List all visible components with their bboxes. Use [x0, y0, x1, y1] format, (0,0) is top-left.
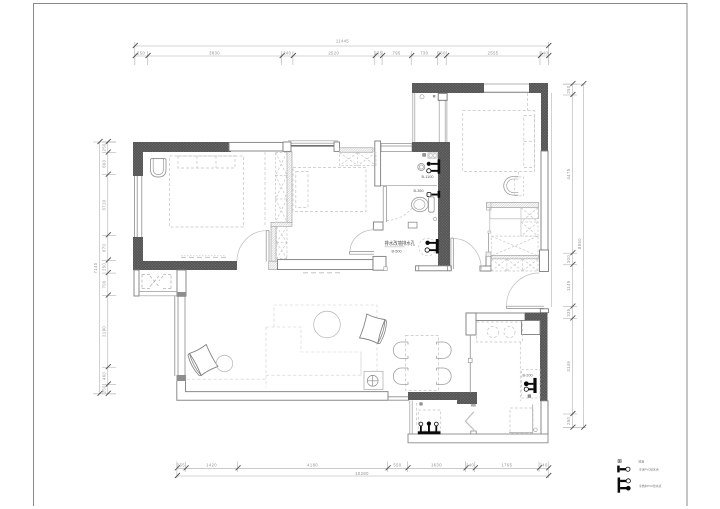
- svg-text:3710: 3710: [102, 199, 107, 210]
- svg-text:1145: 1145: [566, 280, 571, 291]
- svg-text:255: 255: [177, 463, 185, 468]
- svg-text:250: 250: [102, 385, 107, 393]
- svg-text:250: 250: [102, 143, 107, 151]
- svg-text:240: 240: [466, 463, 474, 468]
- svg-text:335: 335: [566, 308, 571, 316]
- svg-text:300: 300: [566, 255, 571, 263]
- svg-text:2190: 2190: [102, 326, 107, 337]
- svg-text:235: 235: [374, 50, 382, 55]
- svg-text:8850: 8850: [577, 238, 582, 249]
- svg-text:240: 240: [283, 50, 291, 55]
- svg-text:660: 660: [102, 159, 107, 167]
- svg-text:250: 250: [102, 262, 107, 270]
- svg-text:1420: 1420: [206, 463, 217, 468]
- svg-text:795: 795: [393, 50, 401, 55]
- svg-text:B-500: B-500: [392, 249, 402, 253]
- svg-text:250: 250: [438, 50, 446, 55]
- svg-text:460: 460: [102, 372, 107, 380]
- svg-text:冷热水PVC给水点: 冷热水PVC给水点: [639, 484, 662, 488]
- svg-text:10280: 10280: [355, 471, 369, 476]
- svg-text:250: 250: [137, 50, 145, 55]
- svg-text:3830: 3830: [209, 50, 220, 55]
- svg-text:240: 240: [540, 463, 548, 468]
- svg-text:冷水PVC给水点: 冷水PVC给水点: [639, 468, 659, 472]
- svg-text:4180: 4180: [307, 463, 318, 468]
- svg-text:700: 700: [102, 280, 107, 288]
- svg-text:250: 250: [566, 85, 571, 93]
- svg-text:1630: 1630: [431, 463, 442, 468]
- svg-text:B-200: B-200: [523, 374, 533, 378]
- svg-text:2520: 2520: [328, 50, 339, 55]
- svg-text:670: 670: [102, 244, 107, 252]
- svg-text:240: 240: [540, 50, 548, 55]
- svg-text:550: 550: [393, 463, 401, 468]
- svg-text:2555: 2555: [488, 50, 499, 55]
- svg-text:3145: 3145: [566, 360, 571, 371]
- svg-text:地漏: 地漏: [638, 459, 644, 463]
- svg-text:730: 730: [420, 50, 428, 55]
- svg-text:11445: 11445: [336, 39, 350, 44]
- svg-text:7140: 7140: [93, 262, 98, 273]
- svg-text:B-1100: B-1100: [422, 175, 434, 179]
- svg-text:B-350: B-350: [414, 189, 424, 193]
- svg-text:1765: 1765: [501, 463, 512, 468]
- svg-text:4475: 4475: [566, 168, 571, 179]
- svg-text:250: 250: [566, 416, 571, 424]
